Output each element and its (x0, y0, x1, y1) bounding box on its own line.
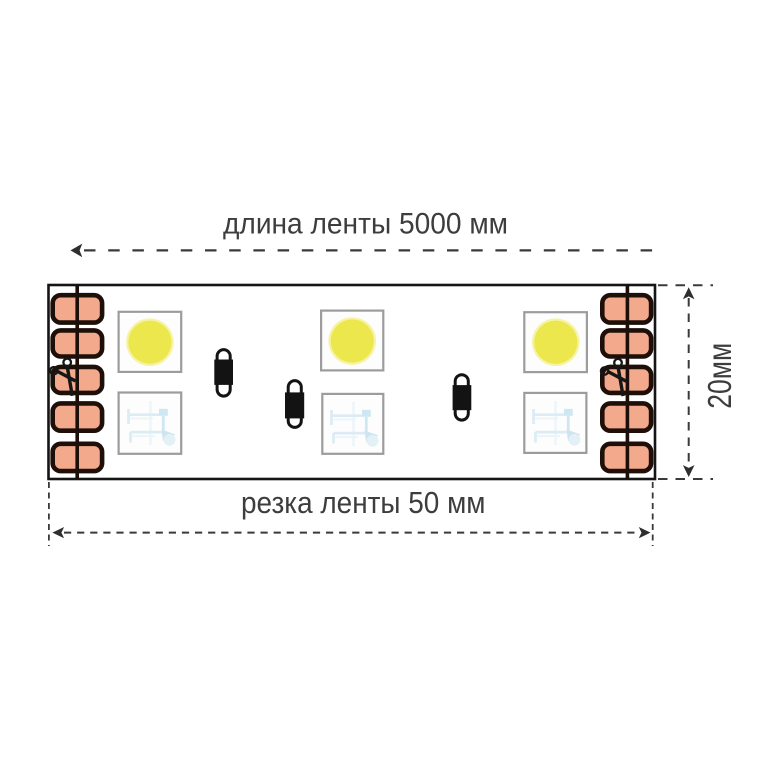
svg-text:20мм: 20мм (701, 343, 738, 409)
svg-text:длина ленты 5000 мм: длина ленты 5000 мм (223, 208, 508, 241)
svg-text:резка ленты 50 мм: резка ленты 50 мм (241, 486, 486, 520)
